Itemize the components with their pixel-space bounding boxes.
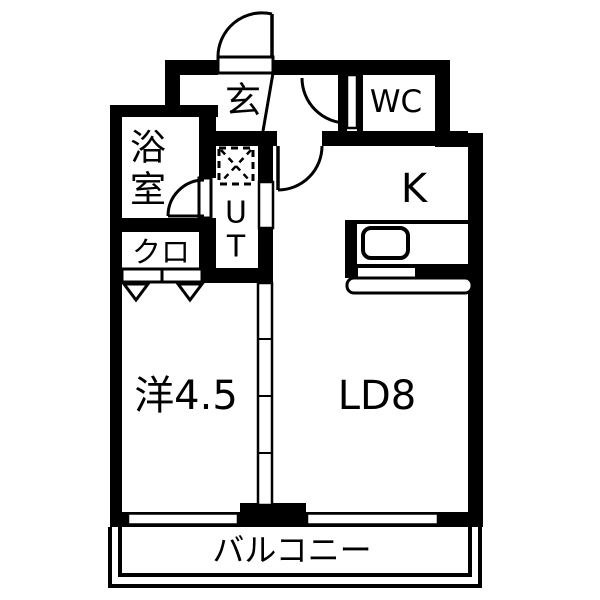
floorplan: 玄 WC 浴 室 U T クロ K 洋4.5 LD8 バルコニー — [0, 0, 600, 600]
window-living-dining — [307, 514, 438, 525]
label-entrance: 玄 — [225, 81, 261, 122]
wall-segment — [110, 218, 215, 232]
wall-segment — [435, 60, 450, 135]
bathroom-door-leaf — [199, 178, 211, 218]
closet-door-panel — [162, 269, 202, 282]
label-living-dining: LD8 — [338, 373, 417, 419]
wall-segment — [258, 131, 273, 182]
label-utility-2: T — [226, 230, 246, 265]
label-kitchen: K — [401, 166, 429, 212]
wall-segment — [322, 131, 468, 146]
label-bathroom-1: 浴 — [130, 128, 166, 169]
wc-door-leaf — [347, 75, 357, 128]
wall-segment — [199, 105, 216, 178]
window-western-room — [128, 514, 238, 525]
closet-door-panel — [122, 269, 162, 282]
wall-segment — [258, 228, 273, 283]
kitchen-sink — [363, 228, 408, 258]
wall-segment — [468, 133, 483, 527]
entrance-threshold — [218, 57, 273, 73]
utility-door — [259, 182, 273, 228]
floorplan-svg: 玄 WC 浴 室 U T クロ K 洋4.5 LD8 バルコニー — [0, 0, 600, 600]
label-western-room: 洋4.5 — [134, 373, 238, 419]
label-bathroom-2: 室 — [130, 170, 166, 211]
label-utility-1: U — [225, 196, 247, 231]
kitchen-counter-front — [347, 278, 472, 293]
wall-segment — [110, 105, 122, 527]
label-closet: クロ — [132, 235, 190, 269]
label-balcony: バルコニー — [212, 531, 371, 569]
wall-segment — [273, 60, 450, 75]
wall-segment — [165, 60, 180, 107]
room-partition-sliding-doors — [258, 283, 272, 505]
label-toilet: WC — [370, 84, 422, 120]
